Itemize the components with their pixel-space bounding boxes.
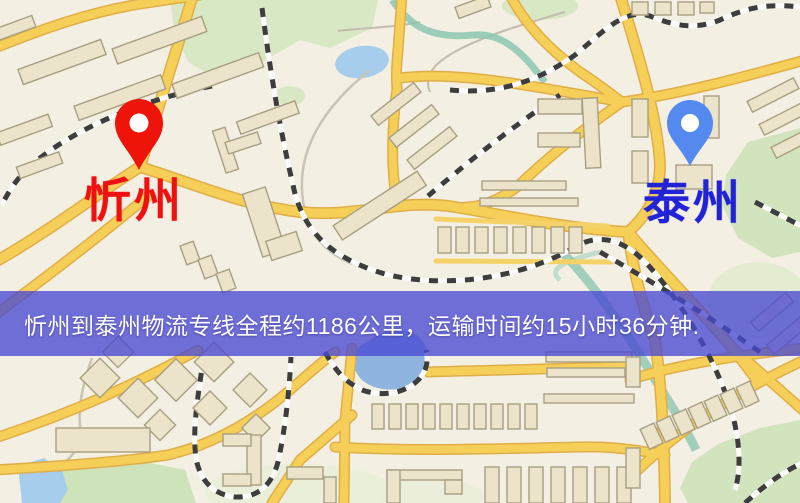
origin-pin[interactable]: [104, 96, 174, 176]
destination-pin[interactable]: [655, 98, 725, 178]
destination-pin-icon: [655, 98, 725, 178]
origin-label: 忻州: [84, 179, 184, 226]
map-view[interactable]: 忻州 泰州 忻州到泰州物流专线全程约1186公里，运输时间约15小时36分钟.: [0, 0, 800, 503]
origin-pin-icon: [104, 96, 174, 176]
map-canvas: [0, 0, 800, 503]
route-info-text: 忻州到泰州物流专线全程约1186公里，运输时间约15小时36分钟.: [24, 307, 700, 341]
destination-label: 泰州: [643, 181, 743, 228]
route-info-banner: 忻州到泰州物流专线全程约1186公里，运输时间约15小时36分钟.: [0, 291, 800, 356]
